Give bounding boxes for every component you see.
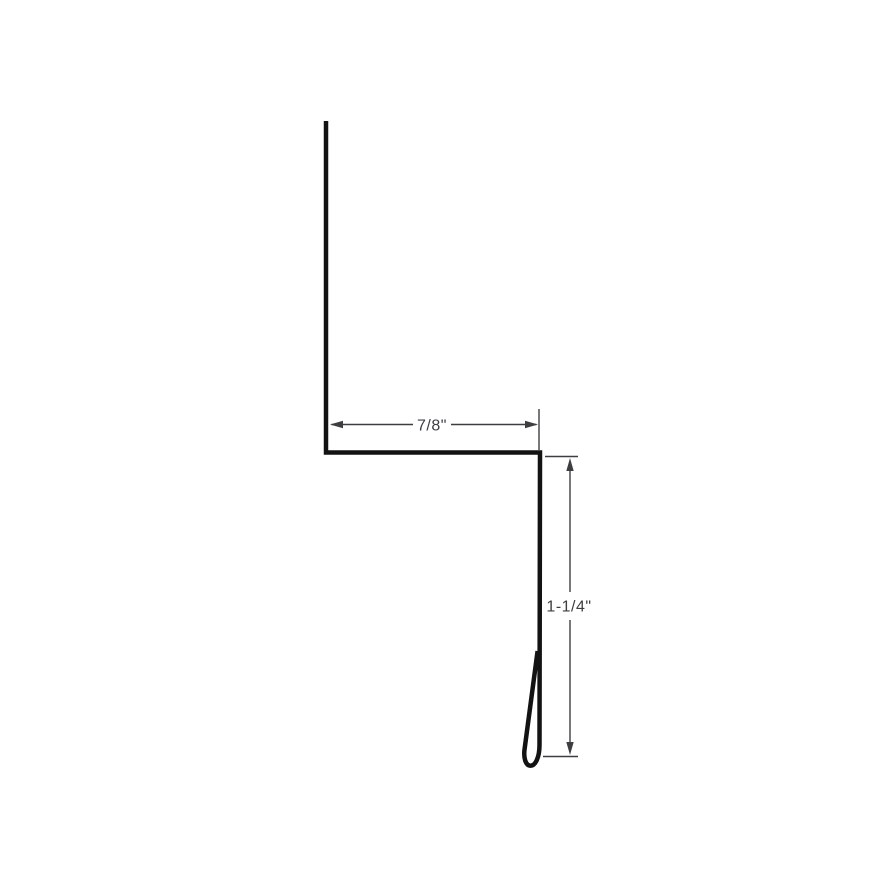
dimension-width-arrowhead-left [330,421,343,428]
dimension-height: 1-1/4" [543,457,592,757]
page: 7/8" 1-1/4" [0,0,892,889]
dimension-width-label: 7/8" [417,418,447,435]
profile-diagram: 7/8" 1-1/4" [0,0,892,889]
dimension-height-arrowhead-top [566,458,573,471]
profile-outline [326,121,540,766]
dimension-width-arrowhead-right [525,421,538,428]
dimension-width: 7/8" [330,409,539,450]
dimension-height-arrowhead-bottom [566,742,573,755]
dimension-height-label: 1-1/4" [546,599,591,616]
